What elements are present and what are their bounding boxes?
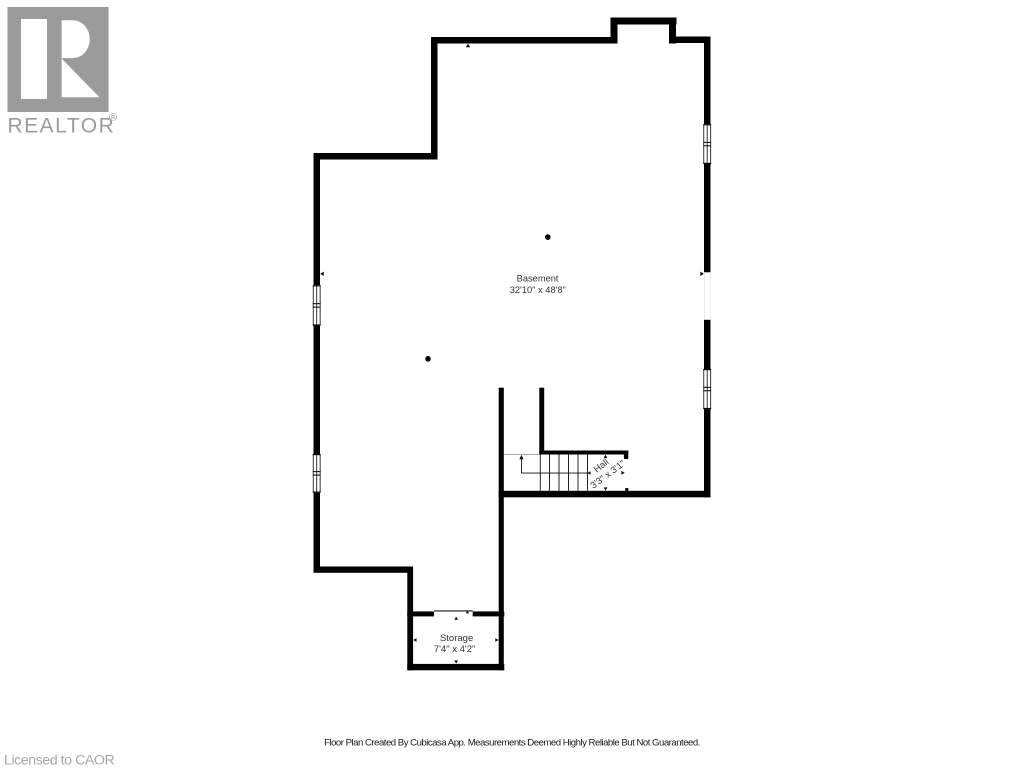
svg-text:32'10" x 48'8": 32'10" x 48'8"	[510, 285, 566, 295]
svg-text:Licensed to CAOR: Licensed to CAOR	[4, 753, 115, 768]
svg-text:Floor Plan Created By Cubicasa: Floor Plan Created By Cubicasa App. Meas…	[324, 738, 700, 749]
svg-text:Basement: Basement	[517, 274, 559, 284]
svg-text:®: ®	[109, 112, 117, 124]
svg-text:REALTOR: REALTOR	[8, 115, 116, 138]
svg-text:7'4" x 4'2": 7'4" x 4'2"	[434, 644, 476, 655]
svg-text:Storage: Storage	[440, 633, 473, 644]
